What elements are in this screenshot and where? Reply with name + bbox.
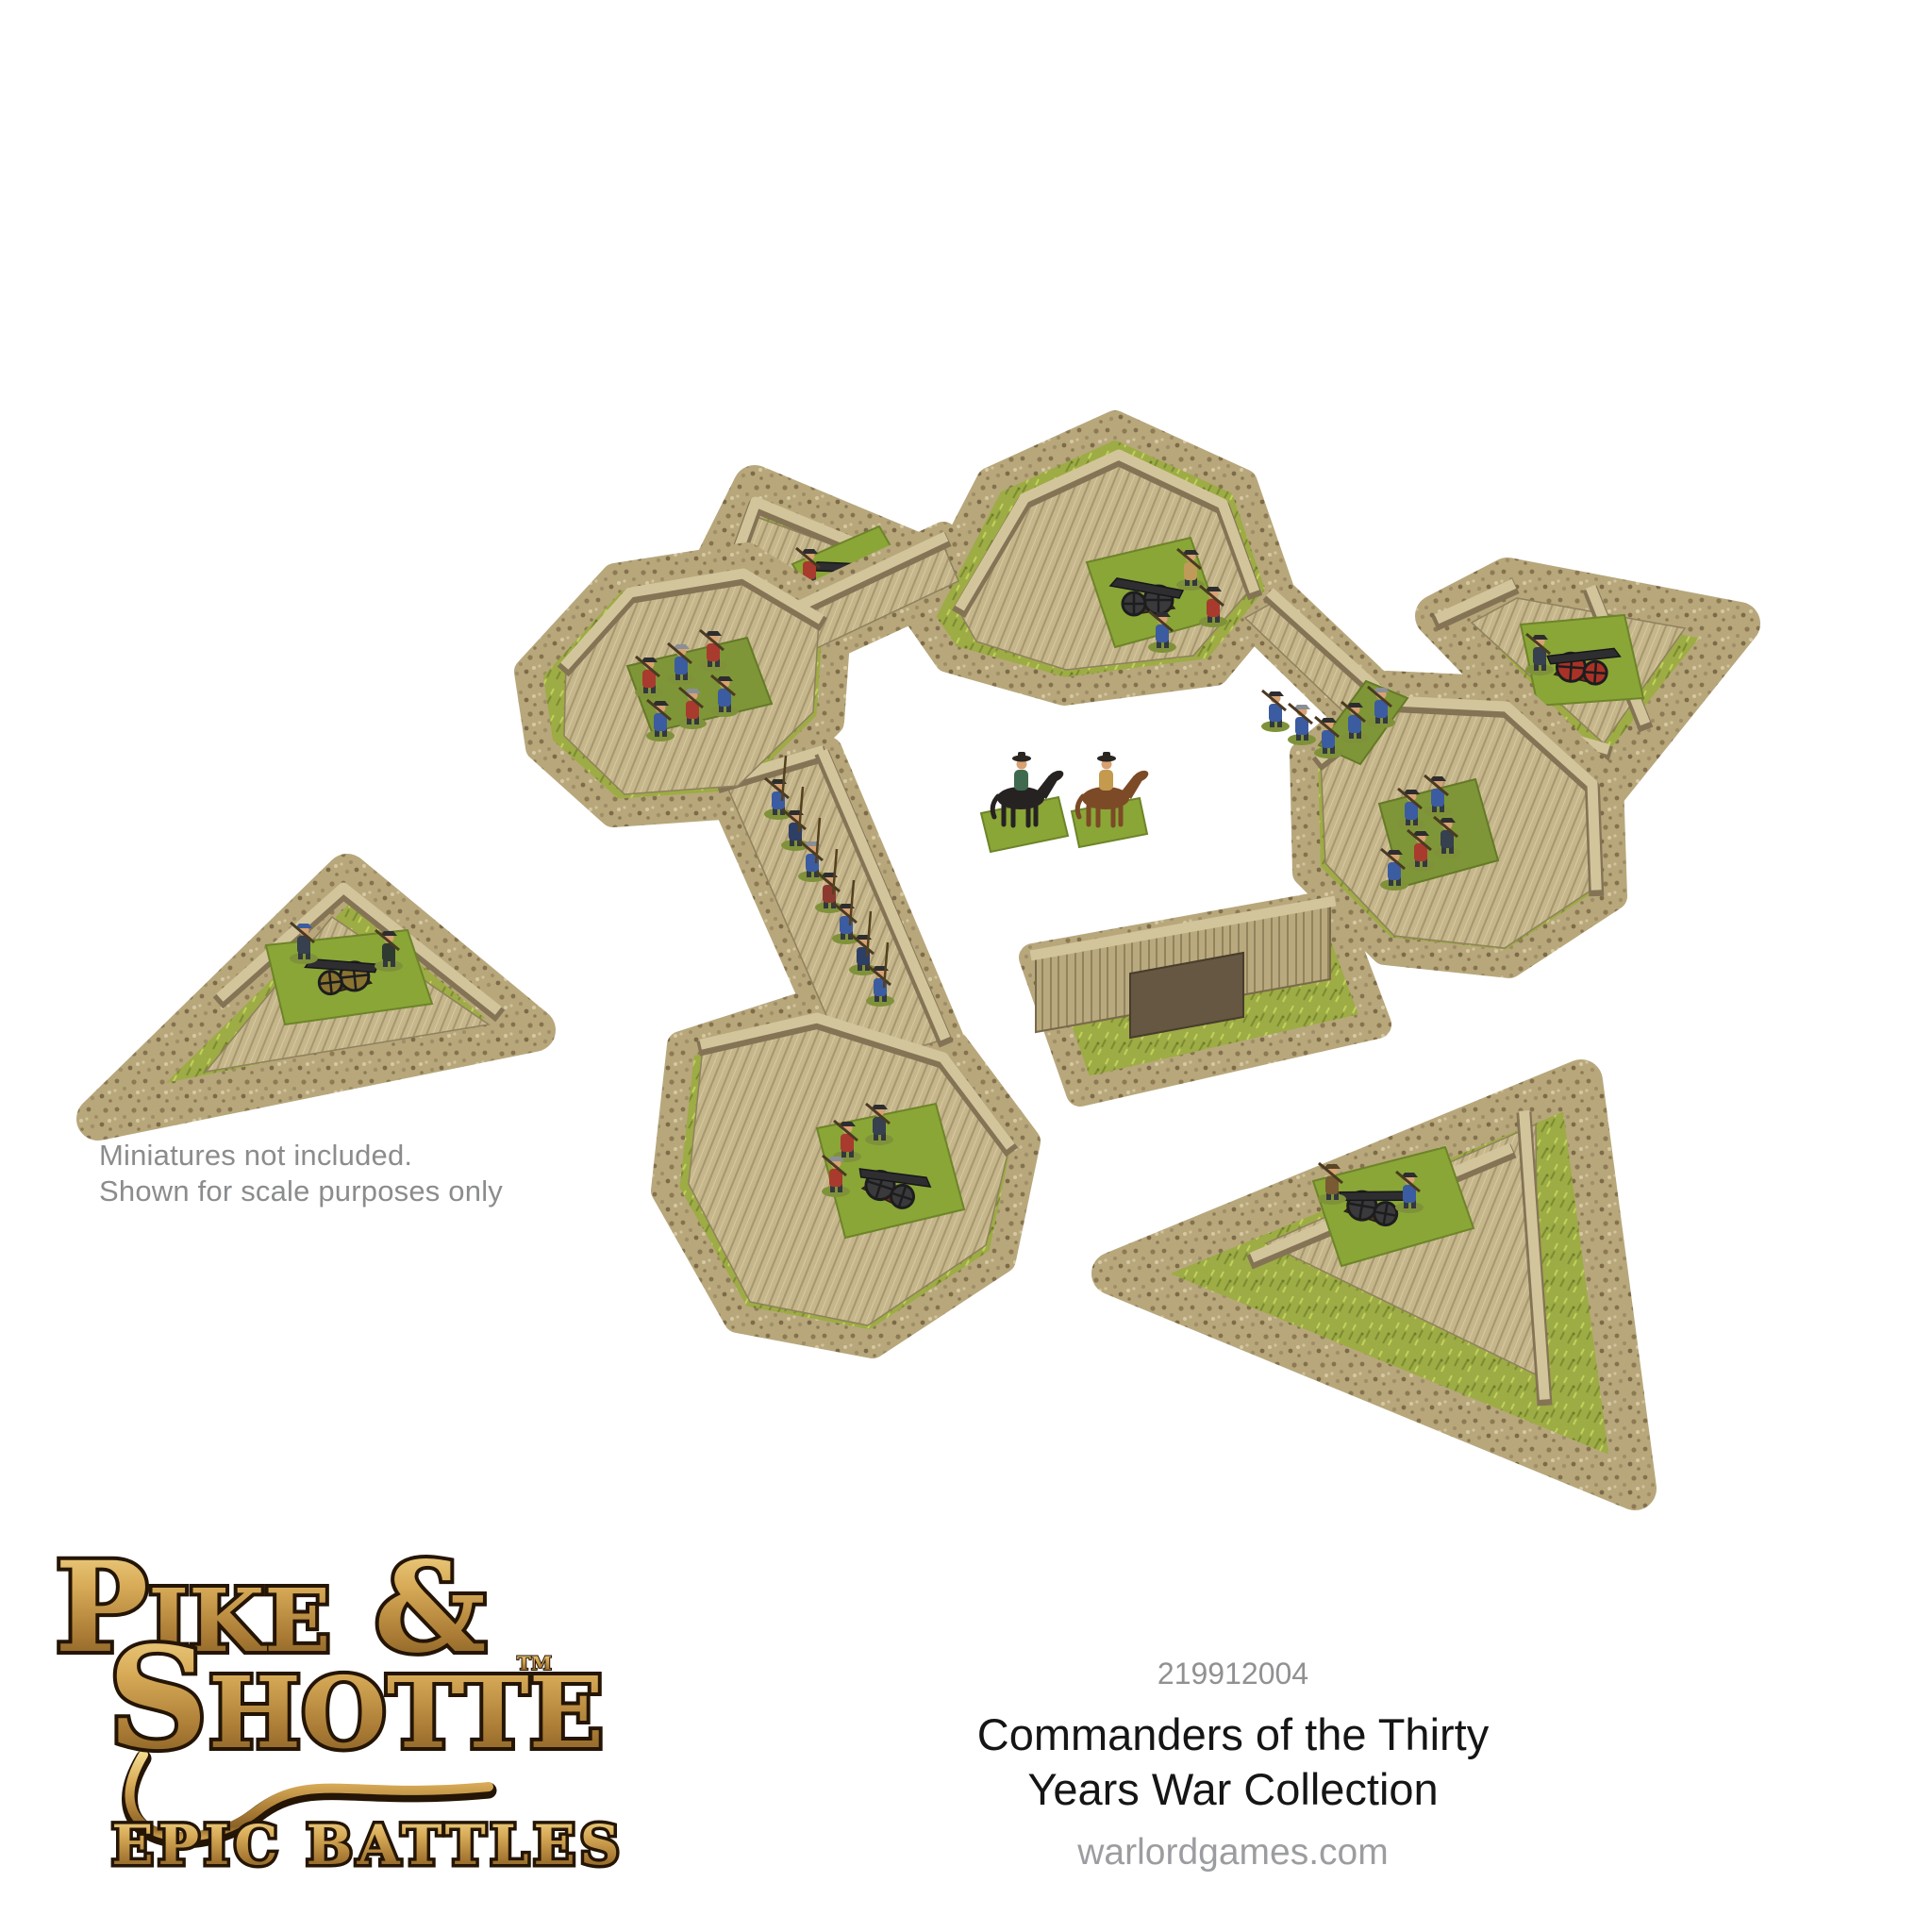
scale-note-line1: Miniatures not included. xyxy=(99,1138,503,1174)
logo-line2: Shotte xyxy=(108,1616,604,1780)
product-info: 219912004 Commanders of the Thirty Years… xyxy=(945,1657,1521,1874)
website-url: warlordgames.com xyxy=(945,1832,1521,1874)
logo-subtitle: Epic Battles xyxy=(111,1813,624,1877)
pike-and-shotte-logo: Pike & Shotte TM Epic Battles xyxy=(38,1521,698,1926)
mounted-commander-miniatures xyxy=(981,752,1150,852)
ravelin-south xyxy=(1113,1081,1635,1489)
product-title: Commanders of the Thirty Years War Colle… xyxy=(945,1707,1521,1817)
product-title-line2: Years War Collection xyxy=(945,1762,1521,1817)
ravelin-west xyxy=(98,875,534,1119)
page: Miniatures not included. Shown for scale… xyxy=(0,0,1932,1932)
product-title-line1: Commanders of the Thirty xyxy=(945,1707,1521,1762)
scale-note: Miniatures not included. Shown for scale… xyxy=(99,1138,503,1209)
product-code: 219912004 xyxy=(945,1657,1521,1690)
logo-trademark: TM xyxy=(517,1652,552,1674)
scale-note-line2: Shown for scale purposes only xyxy=(99,1174,503,1209)
